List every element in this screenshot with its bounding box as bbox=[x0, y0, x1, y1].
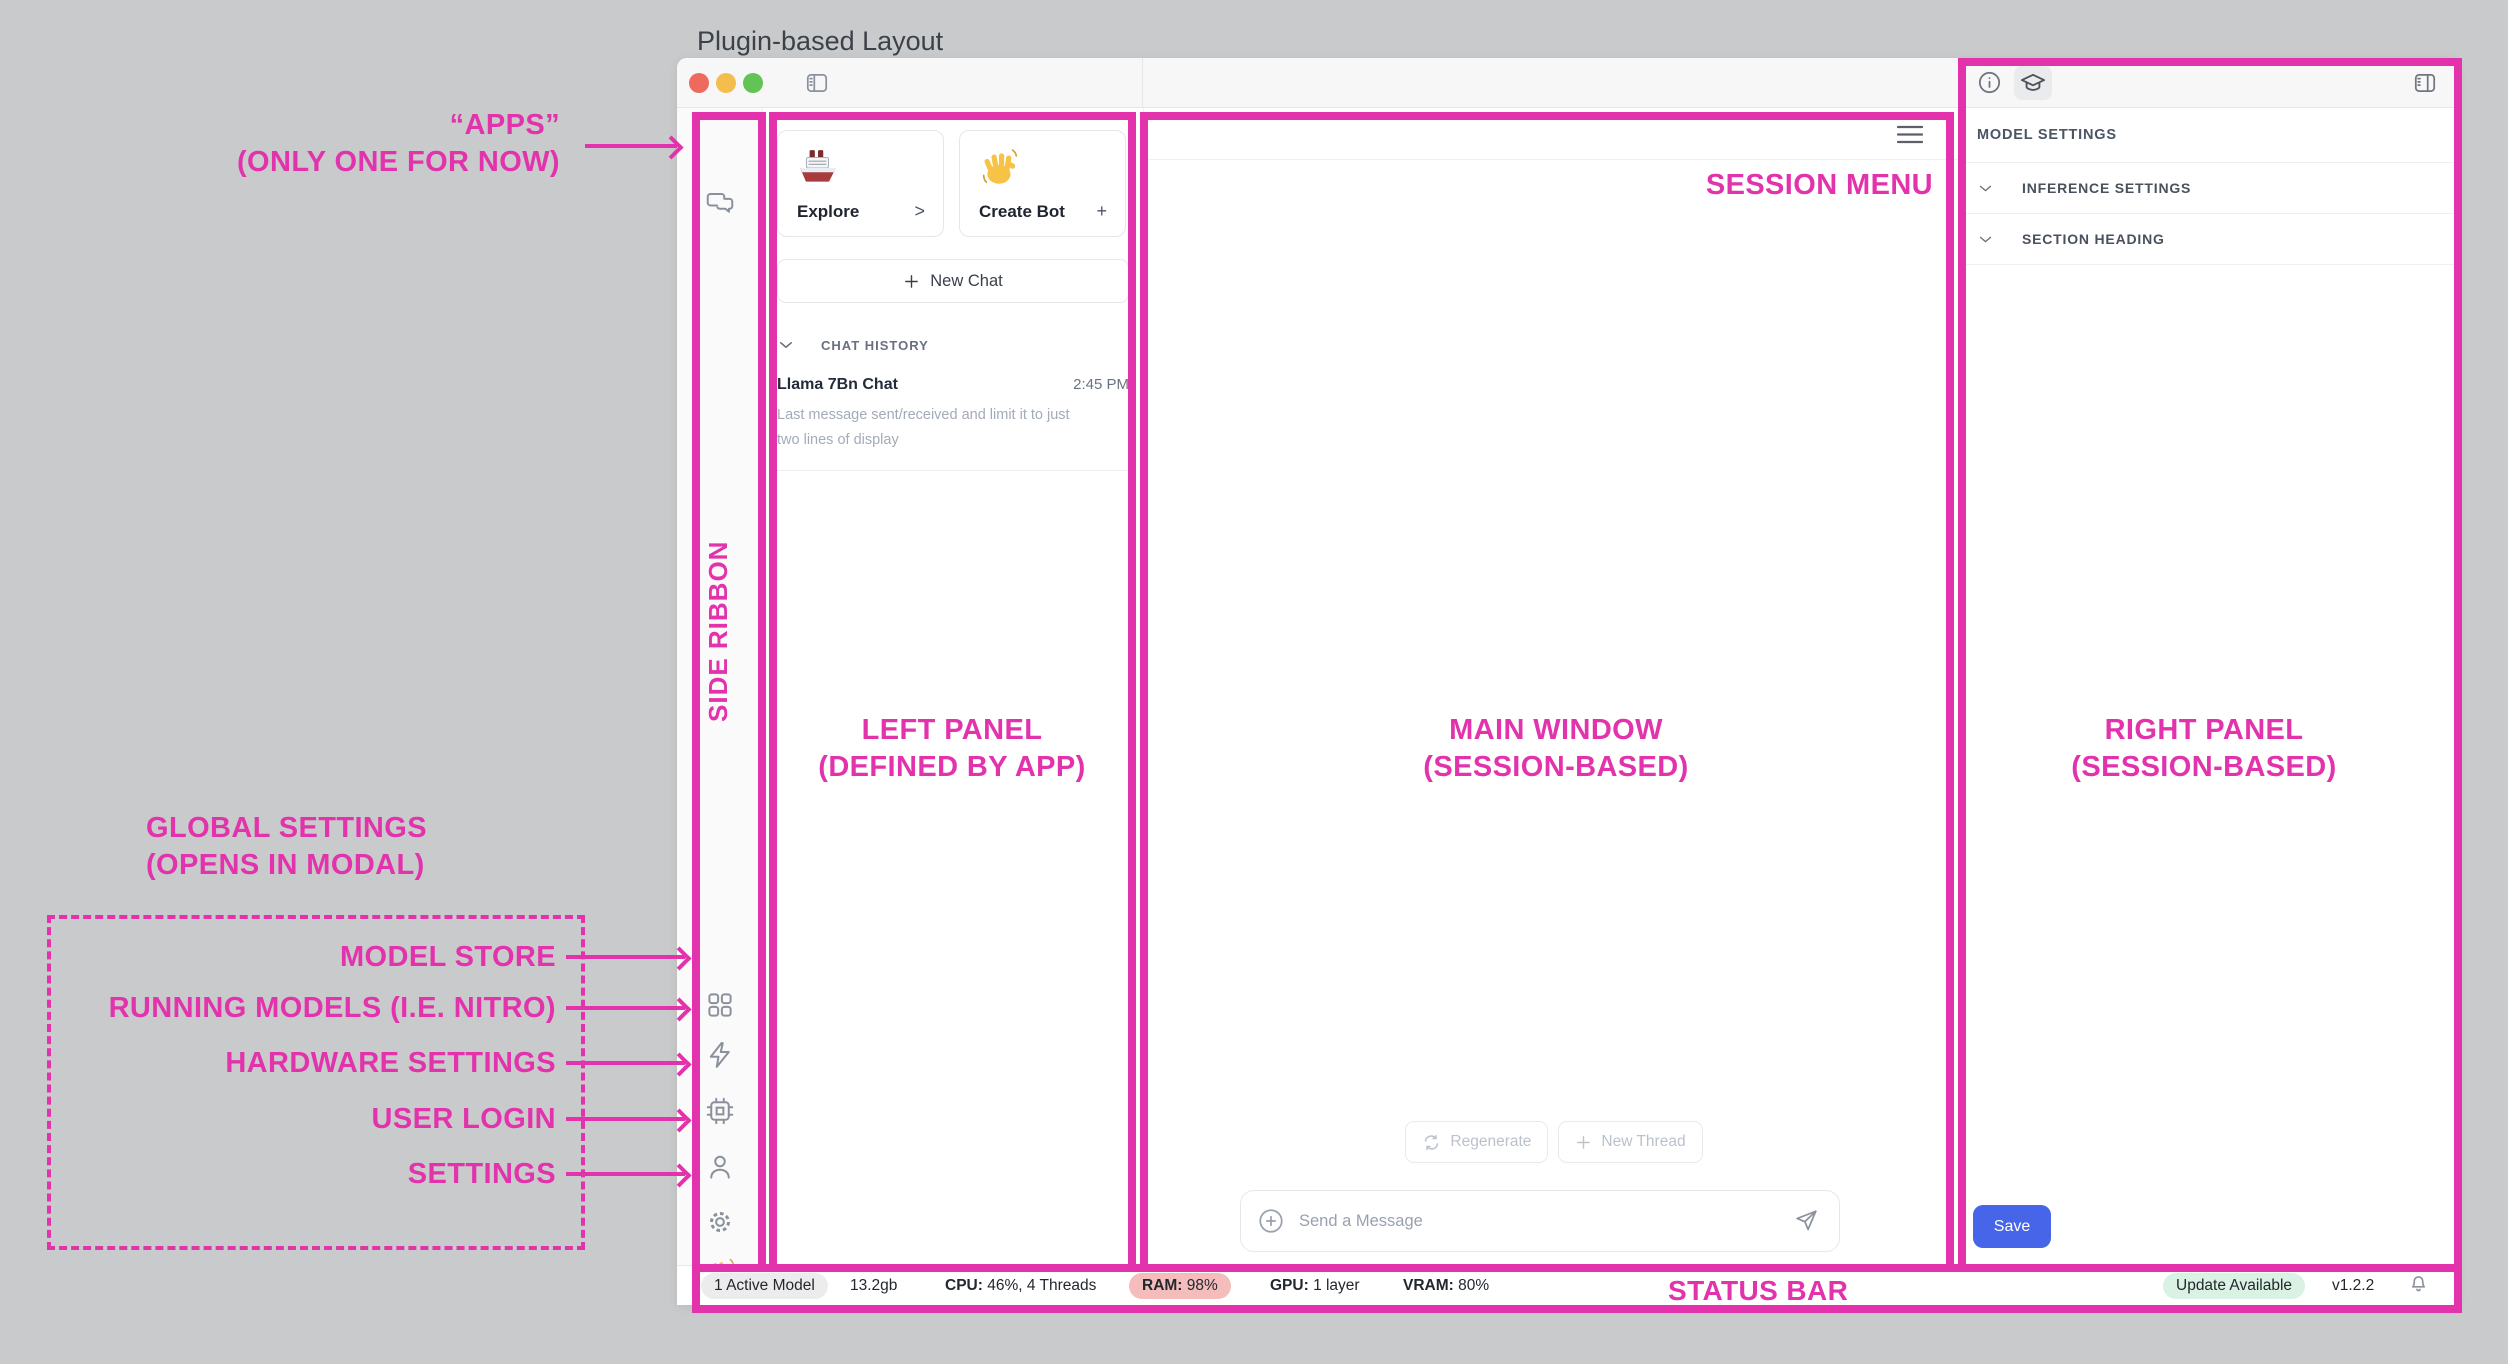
explore-card[interactable]: Explore > bbox=[777, 130, 944, 237]
thread-actions: Regenerate New Thread bbox=[1144, 1121, 1964, 1163]
chat-preview: Last message sent/received and limit it … bbox=[777, 403, 1129, 453]
chat-history-label: CHAT HISTORY bbox=[821, 338, 929, 353]
chevron-down-icon bbox=[1977, 231, 1994, 248]
chat-list-item[interactable]: Llama 7Bn Chat 2:45 PM Last message sent… bbox=[777, 376, 1129, 471]
titlebar-left bbox=[677, 58, 1143, 107]
plus-icon bbox=[1575, 1134, 1592, 1151]
new-chat-label: New Chat bbox=[930, 272, 1002, 291]
ram-stat-badge: RAM: 98% bbox=[1129, 1273, 1231, 1299]
refresh-icon bbox=[1422, 1133, 1441, 1152]
app-window: Explore > bbox=[677, 58, 2458, 1305]
model-settings-tab-icon[interactable] bbox=[2014, 66, 2052, 100]
settings-arrow bbox=[566, 1172, 685, 1176]
model-settings-heading: MODEL SETTINGS bbox=[1965, 108, 2458, 163]
app-cards: Explore > bbox=[777, 130, 1129, 237]
regenerate-button[interactable]: Regenerate bbox=[1405, 1121, 1548, 1163]
plus-accessory: + bbox=[1096, 201, 1107, 222]
titlebar-main bbox=[1143, 58, 1964, 107]
message-input[interactable] bbox=[1299, 1212, 1779, 1231]
hardware-settings-arrow bbox=[566, 1061, 685, 1065]
message-composer bbox=[1240, 1190, 1840, 1252]
card-label: Explore bbox=[797, 202, 859, 222]
running-models-arrow bbox=[566, 1006, 685, 1010]
session-menu-annotation: SESSION MENU bbox=[1633, 167, 1933, 204]
user-login-icon[interactable] bbox=[702, 1149, 738, 1185]
zoom-window-button[interactable] bbox=[743, 73, 763, 93]
ship-emoji bbox=[797, 147, 839, 189]
hardware-settings-icon[interactable] bbox=[702, 1093, 738, 1129]
user-login-annotation: USER LOGIN bbox=[106, 1101, 556, 1138]
main-window-header bbox=[1144, 108, 1964, 160]
card-label: Create Bot bbox=[979, 202, 1065, 222]
inference-settings-section[interactable]: INFERENCE SETTINGS bbox=[1965, 163, 2458, 214]
main-window: Regenerate New Thread bbox=[1143, 108, 1964, 1265]
chat-title: Llama 7Bn Chat bbox=[777, 376, 898, 394]
plus-icon bbox=[903, 273, 920, 290]
session-menu-icon[interactable] bbox=[1897, 125, 1923, 144]
status-bar: 1 Active Model 13.2gb CPU: 46%, 4 Thread… bbox=[677, 1265, 2458, 1305]
vram-stat: VRAM: 80% bbox=[1403, 1277, 1489, 1295]
apps-annotation: “APPS” (ONLY ONE FOR NOW) bbox=[210, 107, 560, 181]
close-window-button[interactable] bbox=[689, 73, 709, 93]
apps-arrow bbox=[585, 144, 677, 148]
gpu-stat: GPU: 1 layer bbox=[1270, 1277, 1360, 1295]
create-bot-card[interactable]: Create Bot + bbox=[959, 130, 1126, 237]
status-bar-annotation: STATUS BAR bbox=[1668, 1272, 1848, 1309]
user-login-arrow bbox=[566, 1117, 685, 1121]
section-heading-section[interactable]: SECTION HEADING bbox=[1965, 214, 2458, 265]
chevron-right-accessory: > bbox=[914, 201, 925, 222]
left-panel: Explore > bbox=[762, 108, 1143, 1265]
page-title: Plugin-based Layout bbox=[697, 26, 943, 57]
send-icon[interactable] bbox=[1793, 1208, 1819, 1234]
main-window-annotation: MAIN WINDOW (SESSION-BASED) bbox=[1356, 712, 1756, 786]
global-settings-annotation: GLOBAL SETTINGS (OPENS IN MODAL) bbox=[146, 810, 427, 884]
chevron-down-icon bbox=[777, 336, 795, 354]
right-panel-header bbox=[1964, 58, 2458, 107]
hardware-settings-annotation: HARDWARE SETTINGS bbox=[106, 1045, 556, 1082]
save-button[interactable]: Save bbox=[1973, 1205, 2051, 1248]
notifications-bell-icon[interactable] bbox=[2407, 1272, 2430, 1300]
app-version: v1.2.2 bbox=[2332, 1277, 2374, 1295]
info-icon[interactable] bbox=[1970, 66, 2008, 100]
right-sidebar-toggle-icon[interactable] bbox=[2406, 66, 2444, 100]
left-panel-annotation: LEFT PANEL (DEFINED BY APP) bbox=[777, 712, 1127, 786]
running-models-icon[interactable] bbox=[702, 1037, 738, 1073]
running-models-annotation: RUNNING MODELS (I.E. NITRO) bbox=[106, 990, 556, 1027]
right-panel-annotation: RIGHT PANEL (SESSION-BASED) bbox=[2004, 712, 2404, 786]
chevron-down-icon bbox=[1977, 180, 1994, 197]
model-store-arrow bbox=[566, 955, 685, 959]
update-available-badge[interactable]: Update Available bbox=[2163, 1273, 2305, 1299]
cpu-stat: CPU: 46%, 4 Threads bbox=[945, 1277, 1096, 1295]
right-panel: MODEL SETTINGS INFERENCE SETTINGS SECTIO… bbox=[1964, 108, 2458, 1265]
settings-gear-icon[interactable] bbox=[702, 1204, 738, 1240]
active-model-badge: 1 Active Model bbox=[701, 1273, 828, 1299]
titlebar bbox=[677, 58, 2458, 108]
chat-app-icon[interactable] bbox=[702, 186, 738, 222]
left-sidebar-toggle-icon[interactable] bbox=[802, 70, 832, 96]
side-ribbon-annotation: SIDE RIBBON bbox=[703, 512, 734, 722]
settings-annotation: SETTINGS bbox=[106, 1156, 556, 1193]
attach-plus-icon[interactable] bbox=[1257, 1207, 1285, 1235]
chat-timestamp: 2:45 PM bbox=[1073, 376, 1129, 393]
new-thread-button[interactable]: New Thread bbox=[1558, 1121, 1702, 1163]
model-store-annotation: MODEL STORE bbox=[106, 939, 556, 976]
desktop: Plugin-based Layout bbox=[0, 0, 2508, 1364]
model-size: 13.2gb bbox=[850, 1277, 897, 1295]
window-body: Explore > bbox=[677, 108, 2458, 1265]
model-store-icon[interactable] bbox=[702, 987, 738, 1023]
wave-emoji bbox=[979, 147, 1021, 189]
minimize-window-button[interactable] bbox=[716, 73, 736, 93]
chat-history-header[interactable]: CHAT HISTORY bbox=[777, 336, 1129, 354]
new-chat-button[interactable]: New Chat bbox=[777, 259, 1129, 303]
